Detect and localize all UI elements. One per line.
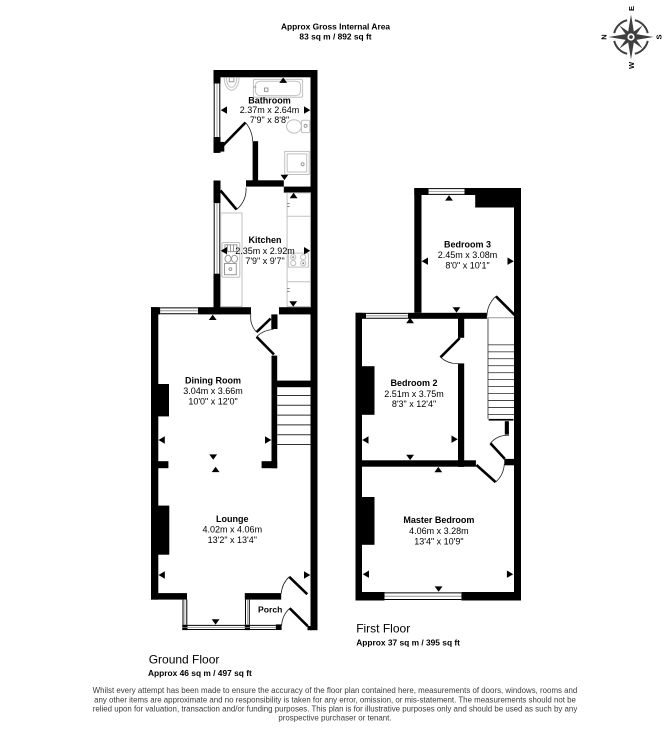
svg-text:8'0" x 10'1": 8'0" x 10'1" [445,261,489,271]
svg-text:2.51m x 3.75m: 2.51m x 3.75m [384,389,444,399]
svg-text:relied upon for valuation, tra: relied upon for valuation, transaction a… [93,704,578,713]
svg-text:Approx Gross Internal Area: Approx Gross Internal Area [281,22,390,32]
svg-text:prospective purchaser or tenan: prospective purchaser or tenant. [278,714,391,723]
svg-text:Bedroom 2: Bedroom 2 [390,378,437,388]
svg-text:83 sq m / 892 sq ft: 83 sq m / 892 sq ft [299,32,371,42]
svg-text:8'3" x 12'4": 8'3" x 12'4" [392,399,436,409]
svg-text:any other items are approximat: any other items are approximate and no r… [94,695,576,704]
svg-text:Dining Room: Dining Room [185,375,241,385]
svg-text:Bathroom: Bathroom [248,96,291,106]
svg-text:Approx 37 sq m / 395 sq ft: Approx 37 sq m / 395 sq ft [356,638,460,648]
svg-text:N: N [600,34,609,39]
svg-text:2.37m x 2.64m: 2.37m x 2.64m [240,105,300,115]
svg-text:4.06m x 3.28m: 4.06m x 3.28m [409,526,469,536]
svg-text:S: S [655,34,664,39]
svg-text:10'0" x 12'0": 10'0" x 12'0" [188,397,237,407]
svg-text:13'2" x 13'4": 13'2" x 13'4" [208,535,257,545]
svg-text:Bedroom 3: Bedroom 3 [444,239,491,249]
svg-text:W: W [627,61,636,69]
svg-text:3.04m x 3.66m: 3.04m x 3.66m [183,386,243,396]
svg-text:E: E [627,6,636,11]
svg-text:Master Bedroom: Master Bedroom [403,515,474,525]
svg-text:Whilst every attempt has been: Whilst every attempt has been made to en… [93,686,578,695]
svg-text:7'9" x 8'8": 7'9" x 8'8" [250,115,289,125]
svg-text:7'9" x 9'7": 7'9" x 9'7" [245,256,284,266]
svg-text:Lounge: Lounge [216,514,249,524]
svg-text:First Floor: First Floor [356,622,410,636]
svg-text:2.45m x 3.08m: 2.45m x 3.08m [438,250,498,260]
svg-text:4.02m x 4.06m: 4.02m x 4.06m [203,525,263,535]
svg-text:Porch: Porch [258,605,282,615]
svg-text:Ground Floor: Ground Floor [149,653,220,667]
svg-text:Kitchen: Kitchen [248,235,281,245]
svg-text:13'4" x 10'9": 13'4" x 10'9" [414,537,463,547]
svg-text:2.35m x 2.92m: 2.35m x 2.92m [235,246,295,256]
svg-text:Approx 46 sq m / 497 sq ft: Approx 46 sq m / 497 sq ft [148,668,252,678]
